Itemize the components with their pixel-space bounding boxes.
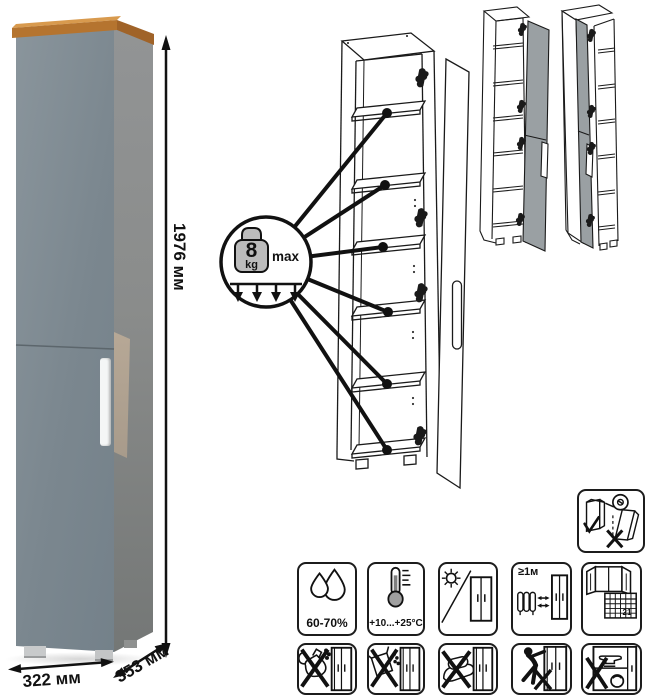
door-handle-profile	[453, 281, 462, 349]
person-dragging-cabinet-glyph	[513, 645, 570, 693]
humidity-label: 60-70%	[299, 616, 355, 630]
open-door	[437, 59, 469, 488]
sun-cabinet-glyph	[440, 564, 496, 634]
height-dimension-label: 1976 мм	[169, 223, 189, 291]
width-dimension-label: 322 мм	[22, 668, 82, 692]
no-dragging-icon	[511, 643, 572, 695]
no-overload-icon	[581, 643, 642, 695]
shelf-load-callout	[221, 108, 393, 455]
variant-door-hinged-left	[562, 5, 618, 250]
hand-sponge-cabinet-glyph	[440, 645, 496, 693]
powder-box-cabinet-glyph	[369, 645, 423, 693]
calendar-day: 21	[619, 608, 635, 617]
anchor-to-wall-glyph	[579, 491, 643, 551]
width-dimension-arrow	[18, 662, 104, 669]
product-sheet: 1976 мм 322 мм 353 мм 8 kg max	[0, 0, 648, 700]
open-cabinet-drawing	[337, 33, 469, 488]
no-direct-sunlight-icon	[438, 562, 498, 636]
anchor-to-wall-icon	[577, 489, 645, 553]
distance-from-heat-icon: ≥1м	[511, 562, 572, 636]
distance-label: ≥1м	[518, 566, 538, 578]
max-load-value: 8	[237, 240, 266, 261]
jug-cabinet-glyph	[299, 645, 355, 693]
no-wet-sponge-icon	[438, 643, 498, 695]
max-load-unit: kg	[237, 260, 266, 271]
no-pouring-liquid-icon	[297, 643, 357, 695]
temperature-icon: +10...+25°С	[367, 562, 425, 636]
max-load-qualifier: max	[272, 249, 299, 264]
open-window-calendar-glyph	[583, 564, 640, 634]
dimension-arrows	[8, 35, 171, 678]
humidity-icon: 60-70%	[297, 562, 357, 636]
door-seam	[16, 345, 114, 349]
variant-door-hinged-right	[480, 7, 549, 251]
temperature-label: +10...+25°С	[369, 618, 423, 629]
anvil-weight-cabinet-glyph	[583, 645, 640, 693]
ventilation-calendar-icon: 21	[581, 562, 642, 636]
shelf-dots	[378, 108, 393, 455]
no-abrasive-powder-icon	[367, 643, 425, 695]
